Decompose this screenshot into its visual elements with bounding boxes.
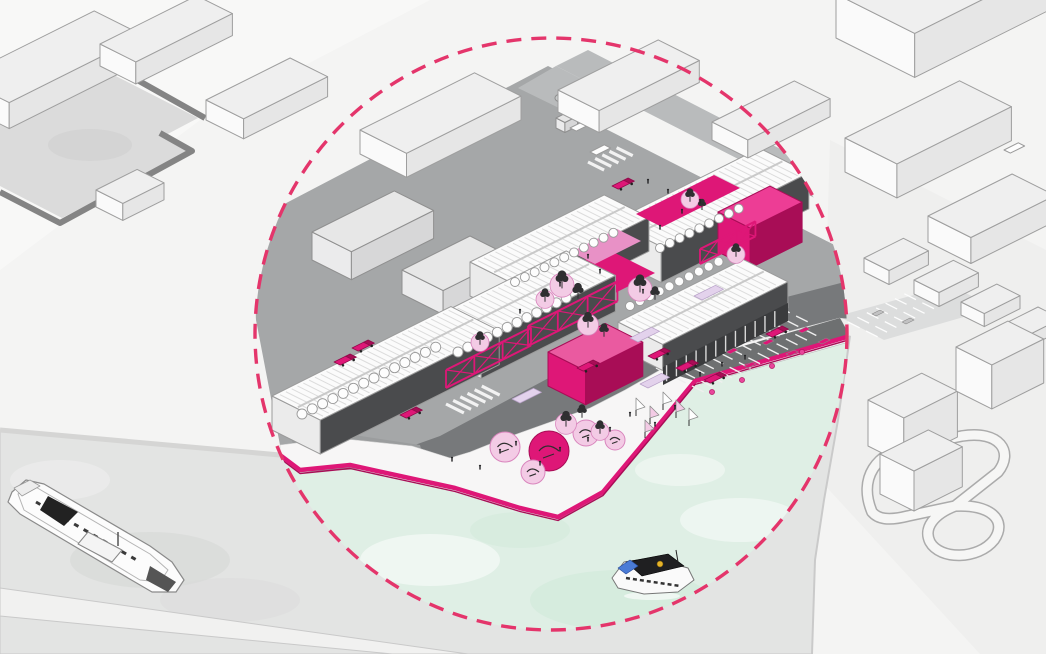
illustration-canvas: Axonometric waterfront market masterplan… [0,0,1046,654]
pedestrian-head [587,254,589,256]
tree-canopy [572,287,578,293]
pedestrian-head [515,441,517,443]
tree-canopy [545,292,550,297]
tree-canopy [702,202,706,206]
tree-canopy [634,279,641,286]
pedestrian-head [599,269,601,271]
truck-wheel [342,364,345,367]
pedestrian-head [667,189,669,191]
pedestrian-head [647,179,649,181]
moored-boat [769,363,774,368]
tree-canopy [599,327,604,332]
moored-boat [799,349,804,354]
moored-boat [709,389,714,394]
tree-canopy [480,335,485,340]
tree-canopy [736,247,741,252]
market-stall [297,409,307,419]
market-stall [685,272,694,281]
tree-canopy [562,276,568,282]
market-stall [694,267,703,276]
market-stall [369,373,379,383]
waterfront-masterplan-illustration: Axonometric waterfront market masterplan… [0,0,1046,654]
market-stall [570,248,579,257]
plaza-circle [521,460,545,484]
truck-wheel [656,358,659,361]
market-stall [724,209,733,218]
market-stall [695,224,704,233]
pedestrian-head [587,437,589,439]
tree-canopy [582,408,587,413]
tree-canopy [600,424,605,429]
market-stall [318,399,328,409]
tree-canopy [588,316,594,322]
market-stall [540,263,549,272]
pedestrian-head [559,447,561,449]
truck-wheel [595,365,598,368]
truck-wheel [684,370,687,373]
market-stall [328,394,338,404]
truck-wheel [712,382,715,385]
market-stall [675,234,684,243]
truck-wheel [784,331,787,334]
tree-canopy [475,335,480,340]
truck-wheel [352,359,355,362]
market-stall [338,388,348,398]
market-stall [579,243,588,252]
plaza-surface [490,432,520,462]
truck-wheel [630,183,633,186]
truck-wheel [694,365,697,368]
market-stall [626,302,635,311]
tree-canopy [650,290,655,295]
tree-canopy [640,280,646,286]
market-stall [390,363,400,373]
plaza-circle [490,432,520,462]
tree-canopy [578,287,584,293]
market-stall [400,358,410,368]
market-stall [599,233,608,242]
tree-canopy [566,415,572,421]
tree-canopy [556,275,563,282]
market-stall [589,238,598,247]
truck-wheel [722,377,725,380]
plaza-surface [521,460,545,484]
market-stall [550,258,559,267]
pedestrian-head [659,225,661,227]
pedestrian-head [629,412,631,414]
market-stall [714,257,723,266]
tree-canopy [655,290,660,295]
pedestrian-head [519,309,521,311]
tree-canopy [540,292,545,297]
pedestrian-head [654,422,656,424]
truck-wheel [585,370,588,373]
water-texture-blob [635,454,725,486]
market-stall [609,228,618,237]
market-stall [734,204,743,213]
pedestrian-head [559,282,561,284]
market-stall [522,313,532,323]
market-stall [431,342,441,352]
market-stall [530,268,539,277]
pedestrian-head [642,289,644,291]
market-stall [705,219,714,228]
scene-root [0,0,1046,654]
pedestrian-head [744,355,746,357]
water-texture-blob [48,129,132,161]
market-stall [520,273,529,282]
pedestrian-head [674,405,676,407]
market-stall [656,244,665,253]
pedestrian-head [499,449,501,451]
tree-canopy [577,408,582,413]
pedestrian-head [539,461,541,463]
pedestrian-head [699,372,701,374]
truck-wheel [370,345,373,348]
tree-canopy [582,316,588,322]
market-stall [715,214,724,223]
market-stall [704,262,713,271]
market-stall [502,322,512,332]
market-stall [532,308,542,318]
truck-wheel [774,336,777,339]
market-stall [420,347,430,357]
tree-canopy [685,192,690,197]
tree-canopy [604,327,609,332]
tree-canopy [595,424,600,429]
tree-canopy [690,192,695,197]
market-stall [359,378,369,388]
pedestrian-head [609,427,611,429]
tree-canopy [560,415,566,421]
market-stall [511,278,520,287]
truck-wheel [408,417,411,420]
market-stall [665,239,674,248]
market-stall [453,347,463,357]
market-stall [348,383,358,393]
tree-canopy [731,247,736,252]
pedestrian-head [721,362,723,364]
truck-wheel [360,350,363,353]
market-stall [410,352,420,362]
market-stall [492,327,502,337]
ferry-badge [657,561,663,567]
pedestrian-head [699,199,701,201]
market-stall [379,368,389,378]
pedestrian-head [479,465,481,467]
pedestrian-head [451,457,453,459]
pedestrian-head [681,209,683,211]
market-stall [675,277,684,286]
market-stall [307,404,317,414]
truck-wheel [620,188,623,191]
moored-boat [739,377,744,382]
market-stall [512,317,522,327]
market-stall [665,282,674,291]
truck-wheel [666,353,669,356]
market-stall [560,253,569,262]
market-stall [685,229,694,238]
truck-wheel [418,412,421,415]
